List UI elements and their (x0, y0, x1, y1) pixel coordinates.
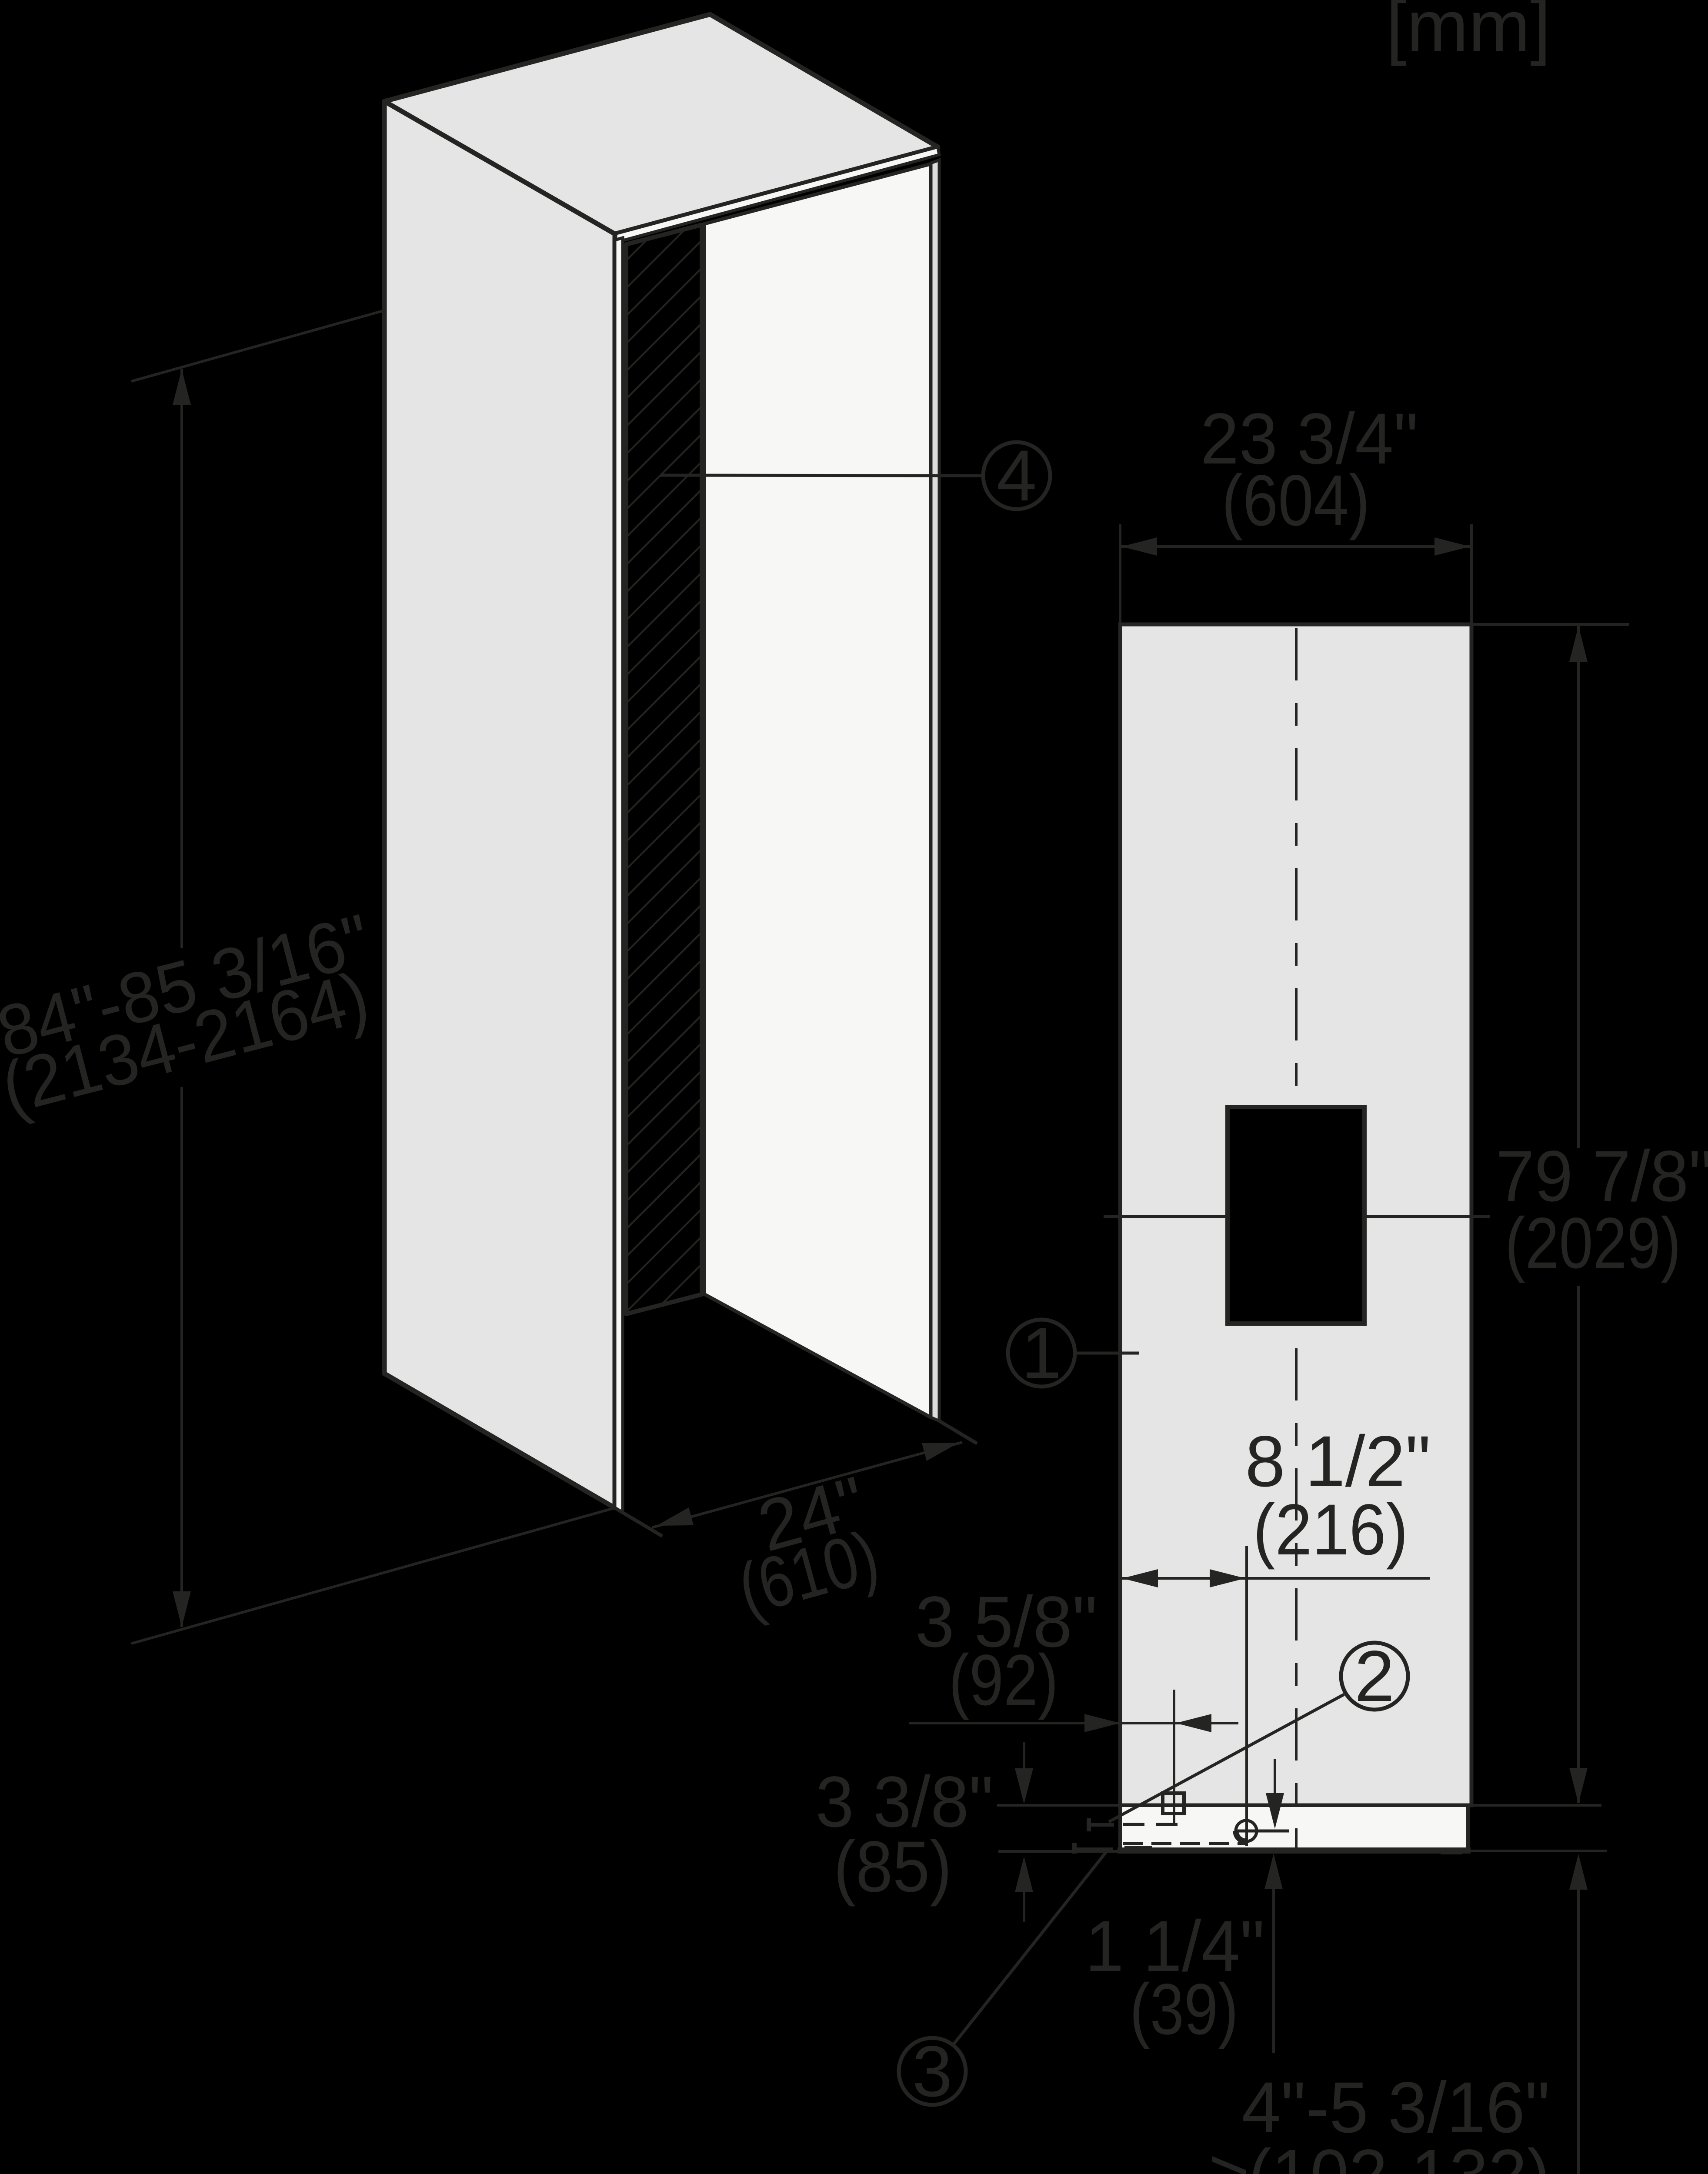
svg-text:(39): (39) (1130, 1969, 1238, 2050)
svg-text:3: 3 (912, 2031, 952, 2112)
svg-text:[mm]: [mm] (1386, 0, 1551, 67)
svg-text:≥(102-132): ≥(102-132) (1210, 2135, 1550, 2174)
svg-text:(92): (92) (949, 1640, 1058, 1721)
svg-text:(604): (604) (1222, 460, 1370, 541)
svg-text:(85): (85) (834, 1827, 952, 1907)
svg-text:1: 1 (1021, 1313, 1061, 1394)
svg-text:(216): (216) (1253, 1490, 1408, 1570)
svg-text:2: 2 (1354, 1636, 1394, 1717)
svg-text:4: 4 (997, 436, 1037, 516)
svg-text:(2029): (2029) (1505, 1203, 1681, 1284)
